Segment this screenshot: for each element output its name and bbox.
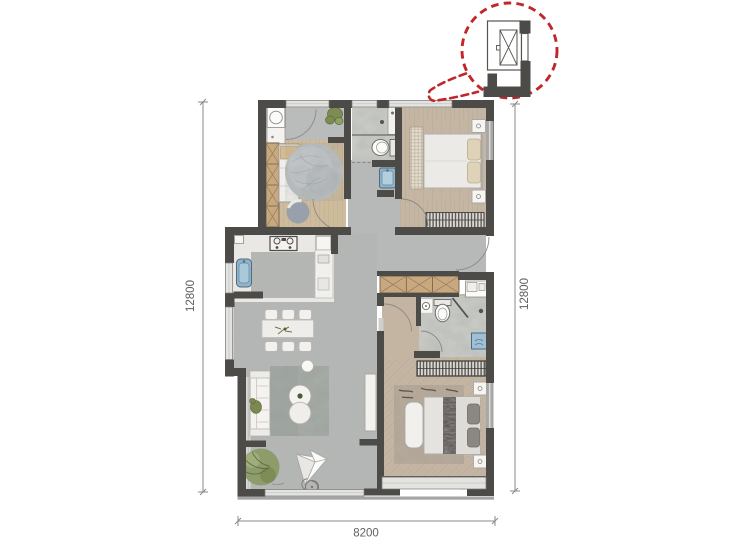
svg-text:8200: 8200 <box>353 528 379 540</box>
svg-text:12800: 12800 <box>519 278 531 310</box>
svg-text:12800: 12800 <box>185 280 197 312</box>
